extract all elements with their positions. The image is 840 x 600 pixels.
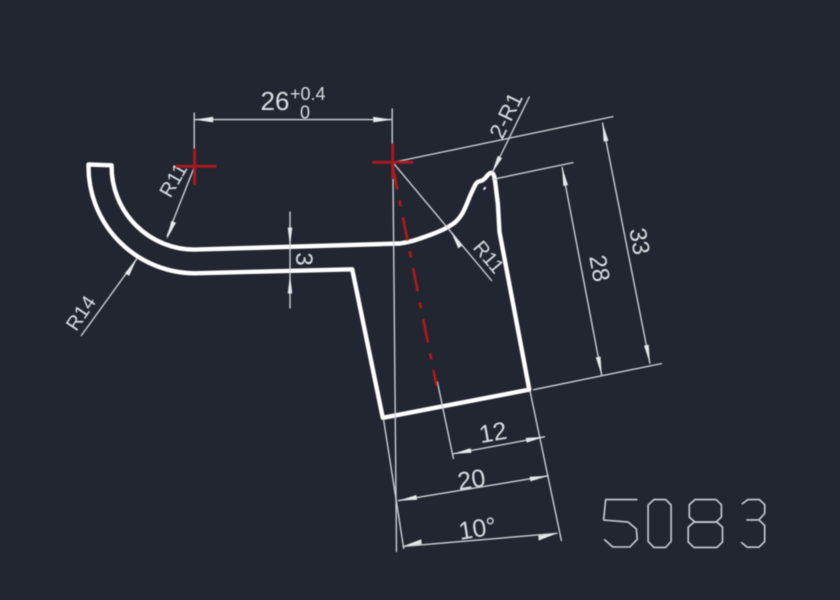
svg-text:3: 3 (290, 252, 317, 265)
svg-text:R14: R14 (62, 292, 101, 335)
svg-text:10°: 10° (457, 512, 499, 546)
svg-text:+0.4: +0.4 (290, 84, 326, 104)
svg-text:20: 20 (456, 464, 488, 496)
svg-text:2-R1: 2-R1 (484, 89, 527, 143)
svg-text:28: 28 (583, 253, 614, 284)
svg-text:26: 26 (261, 86, 290, 116)
svg-text:12: 12 (477, 417, 509, 449)
svg-text:0: 0 (300, 103, 310, 123)
svg-text:33: 33 (623, 226, 654, 257)
